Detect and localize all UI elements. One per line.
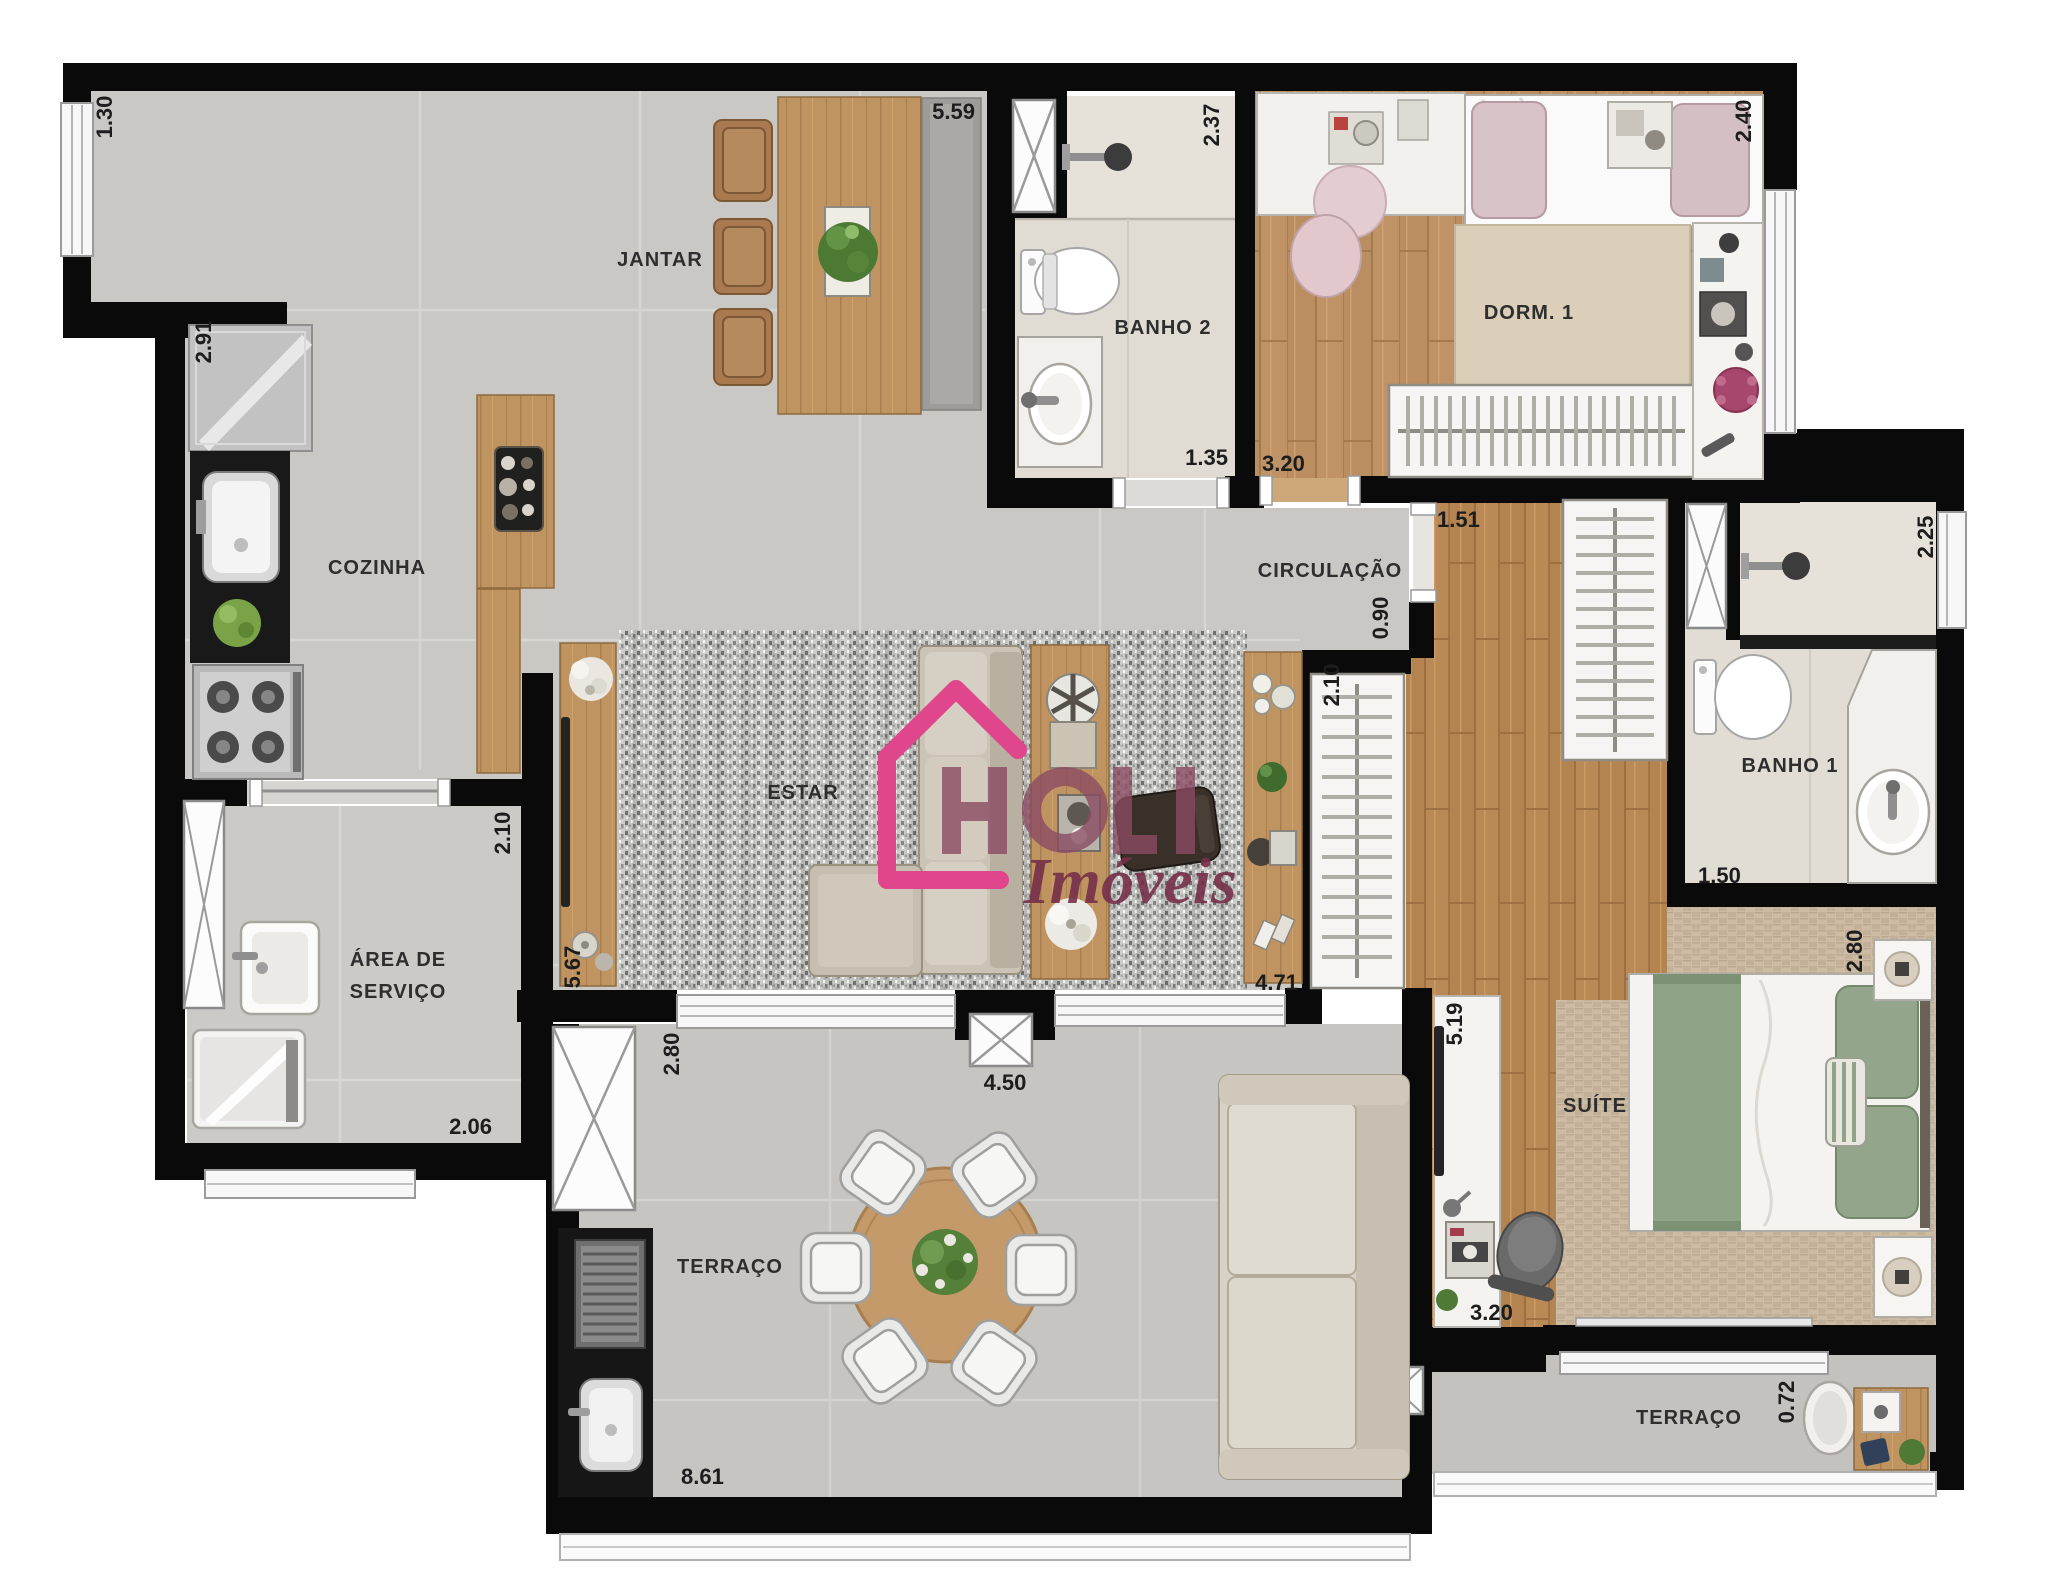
svg-text:2.80: 2.80	[1842, 930, 1867, 973]
svg-text:8.61: 8.61	[681, 1464, 724, 1489]
svg-text:5.19: 5.19	[1442, 1003, 1467, 1046]
svg-text:0.90: 0.90	[1368, 597, 1393, 640]
svg-text:1.30: 1.30	[92, 96, 117, 139]
svg-text:TERRAÇO: TERRAÇO	[677, 1256, 783, 1278]
svg-text:1.35: 1.35	[1185, 445, 1228, 470]
svg-text:5.67: 5.67	[560, 946, 585, 989]
svg-text:2.10: 2.10	[1319, 664, 1344, 707]
svg-text:2.80: 2.80	[659, 1033, 684, 1076]
svg-text:3.20: 3.20	[1470, 1300, 1513, 1325]
svg-text:1.50: 1.50	[1698, 863, 1741, 888]
svg-text:SUÍTE: SUÍTE	[1563, 1094, 1627, 1117]
svg-text:TERRAÇO: TERRAÇO	[1636, 1407, 1742, 1429]
svg-text:2.40: 2.40	[1731, 100, 1756, 143]
svg-text:2.10: 2.10	[490, 812, 515, 855]
svg-text:4.50: 4.50	[984, 1070, 1027, 1095]
svg-text:2.25: 2.25	[1913, 516, 1938, 559]
svg-text:ESTAR: ESTAR	[767, 782, 838, 804]
svg-text:2.06: 2.06	[449, 1114, 492, 1139]
svg-text:JANTAR: JANTAR	[617, 249, 703, 271]
svg-text:4.71: 4.71	[1255, 970, 1298, 995]
svg-text:COZINHA: COZINHA	[328, 557, 426, 579]
svg-text:3.20: 3.20	[1262, 451, 1305, 476]
svg-text:5.59: 5.59	[932, 99, 975, 124]
svg-text:CIRCULAÇÃO: CIRCULAÇÃO	[1258, 559, 1402, 582]
svg-text:1.51: 1.51	[1437, 507, 1480, 532]
svg-text:Imóveis: Imóveis	[1023, 845, 1237, 918]
svg-text:BANHO 2: BANHO 2	[1114, 317, 1211, 339]
svg-text:2.37: 2.37	[1199, 104, 1224, 147]
svg-text:2.91: 2.91	[191, 321, 216, 364]
svg-text:SERVIÇO: SERVIÇO	[350, 981, 447, 1003]
svg-text:DORM. 1: DORM. 1	[1484, 302, 1574, 324]
svg-text:ÁREA DE: ÁREA DE	[350, 948, 446, 971]
svg-text:0.72: 0.72	[1774, 1381, 1799, 1424]
svg-text:BANHO 1: BANHO 1	[1741, 755, 1838, 777]
